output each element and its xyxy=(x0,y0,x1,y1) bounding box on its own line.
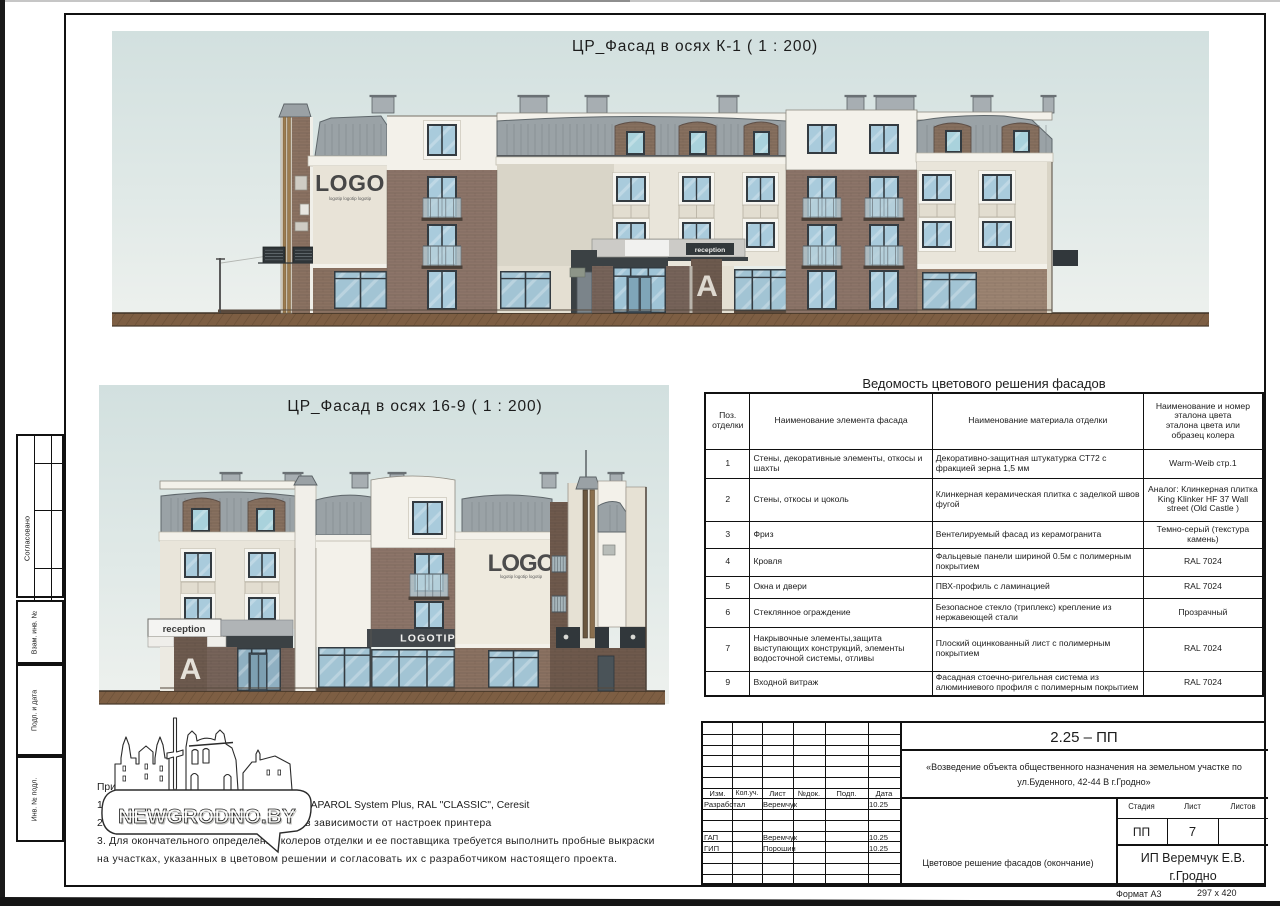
svg-text:A: A xyxy=(180,653,202,686)
svg-text:A: A xyxy=(696,270,718,303)
svg-text:reception: reception xyxy=(695,247,726,254)
svg-text:logotip logotip logotip: logotip logotip logotip xyxy=(500,574,543,579)
svg-text:logotip logotip logotip: logotip logotip logotip xyxy=(329,196,372,201)
svg-text:LOGO: LOGO xyxy=(488,550,555,577)
svg-text:LOGO: LOGO xyxy=(315,170,385,196)
svg-text:LOGOTIP: LOGOTIP xyxy=(400,633,456,645)
svg-text:reception: reception xyxy=(163,624,206,635)
